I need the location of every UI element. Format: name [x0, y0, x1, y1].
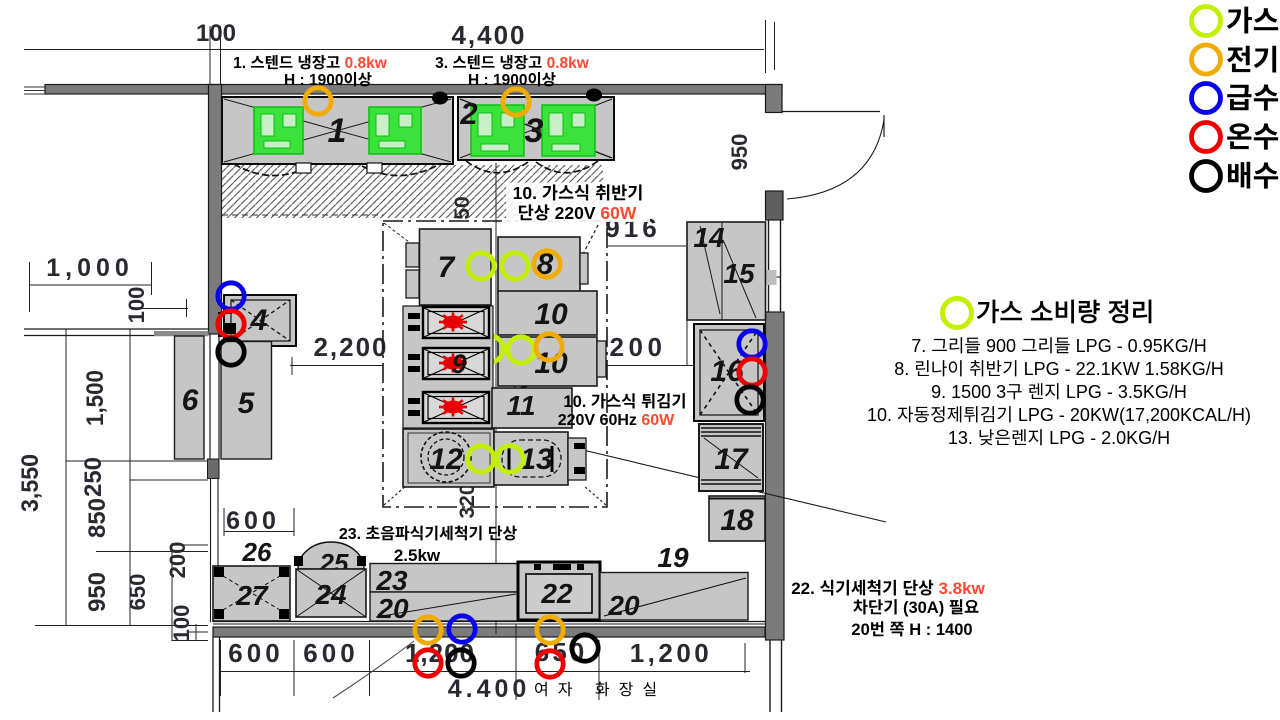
- svg-text:20: 20: [376, 593, 409, 624]
- svg-text:220V 60Hz 60W: 220V 60Hz 60W: [558, 406, 675, 430]
- svg-text:50: 50: [451, 196, 474, 219]
- svg-text:26: 26: [242, 537, 272, 567]
- svg-text:3,550: 3,550: [17, 454, 44, 512]
- svg-text:24: 24: [314, 579, 347, 610]
- svg-text:여자 화장실: 여자 화장실: [534, 676, 666, 700]
- svg-text:1: 1: [328, 112, 347, 150]
- svg-text:13. 낮은렌지 LPG - 2.0KG/H: 13. 낮은렌지 LPG - 2.0KG/H: [948, 424, 1170, 450]
- svg-text:320: 320: [456, 483, 479, 518]
- svg-text:600: 600: [226, 507, 280, 535]
- svg-text:가스: 가스: [1226, 0, 1279, 40]
- svg-text:H : 1900이상: H : 1900이상: [468, 68, 556, 90]
- svg-text:250: 250: [80, 457, 107, 497]
- svg-text:2: 2: [459, 96, 477, 131]
- svg-text:950: 950: [727, 134, 752, 171]
- svg-text:2.5kw: 2.5kw: [394, 541, 441, 566]
- svg-text:4.400: 4.400: [448, 675, 531, 703]
- svg-text:17: 17: [714, 443, 749, 476]
- svg-text:급수: 급수: [1226, 75, 1279, 117]
- svg-text:10: 10: [534, 298, 568, 331]
- svg-text:20: 20: [607, 590, 640, 621]
- svg-text:14: 14: [693, 222, 725, 253]
- svg-text:650: 650: [125, 574, 150, 611]
- svg-text:27: 27: [235, 580, 269, 611]
- svg-text:4,400: 4,400: [451, 20, 526, 50]
- svg-text:100: 100: [196, 20, 236, 47]
- svg-text:7: 7: [438, 251, 456, 284]
- svg-text:2,200: 2,200: [313, 332, 388, 362]
- svg-text:H : 1900이상: H : 1900이상: [284, 68, 372, 90]
- svg-text:22: 22: [540, 578, 573, 609]
- svg-text:4: 4: [250, 304, 268, 337]
- svg-text:전기: 전기: [1226, 37, 1279, 79]
- svg-text:200: 200: [165, 542, 190, 579]
- svg-text:20번 쪽 H : 1400: 20번 쪽 H : 1400: [851, 616, 972, 640]
- svg-text:12: 12: [429, 443, 463, 476]
- svg-text:1,500: 1,500: [82, 370, 109, 426]
- svg-text:200: 200: [610, 332, 667, 362]
- svg-text:950: 950: [84, 572, 111, 612]
- svg-text:600: 600: [228, 638, 283, 668]
- svg-text:18: 18: [720, 504, 754, 537]
- svg-text:배수: 배수: [1226, 153, 1279, 195]
- svg-text:9: 9: [451, 349, 466, 379]
- svg-text:가스 소비량 정리: 가스 소비량 정리: [976, 292, 1154, 329]
- svg-text:1,000: 1,000: [46, 254, 134, 282]
- svg-text:600: 600: [303, 638, 358, 668]
- svg-text:850: 850: [84, 498, 111, 538]
- svg-text:3: 3: [525, 112, 544, 150]
- svg-text:차단기 (30A) 필요: 차단기 (30A) 필요: [853, 594, 979, 618]
- svg-text:온수: 온수: [1226, 114, 1279, 156]
- svg-text:100: 100: [124, 287, 149, 324]
- svg-text:단상 220V 60W: 단상 220V 60W: [518, 200, 637, 225]
- svg-text:15: 15: [723, 258, 755, 289]
- svg-text:100: 100: [169, 605, 194, 642]
- svg-text:1,200: 1,200: [630, 638, 713, 668]
- svg-text:6: 6: [182, 384, 199, 417]
- svg-text:5: 5: [238, 387, 256, 420]
- svg-text:19: 19: [657, 542, 689, 573]
- svg-text:11: 11: [506, 390, 535, 421]
